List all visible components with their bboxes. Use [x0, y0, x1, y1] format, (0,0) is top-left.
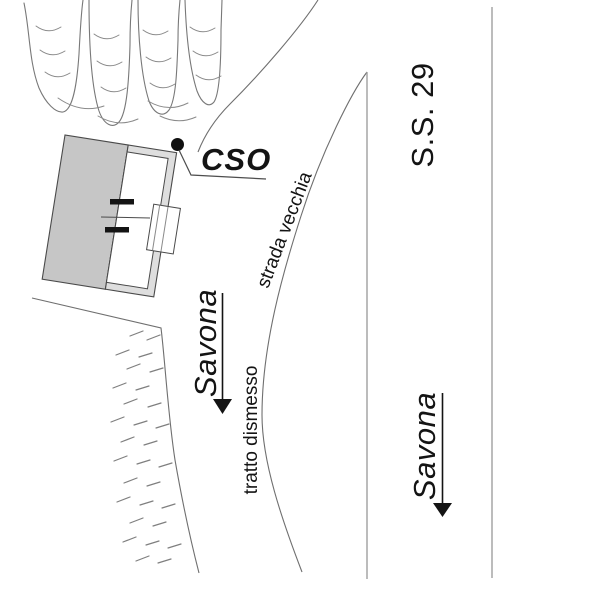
savona-label-highway: Savona — [407, 392, 442, 500]
building-tick-1 — [110, 199, 134, 205]
old-road-lower-curve — [262, 72, 367, 572]
sketch-map-page: CSO strada vecchia tratto dismesso S.S. … — [0, 0, 600, 600]
embankment-line — [32, 298, 199, 573]
old-road-upper-curve — [198, 0, 318, 152]
highway-label: S.S. 29 — [405, 62, 440, 167]
sketch-map: CSO strada vecchia tratto dismesso S.S. … — [0, 0, 600, 600]
embankment-dashes — [111, 331, 181, 563]
cso-marker-dot — [171, 138, 184, 151]
arrow-down-icon — [433, 503, 452, 517]
arrow-down-icon — [213, 399, 232, 414]
building-tick-2 — [105, 227, 129, 233]
old-road-label: strada vecchia — [253, 169, 317, 291]
disused-section-label: tratto dismesso — [241, 366, 262, 495]
woodland-hatching — [24, 0, 222, 125]
cso-label: CSO — [201, 142, 271, 177]
savona-label-old-road: Savona — [188, 289, 223, 397]
